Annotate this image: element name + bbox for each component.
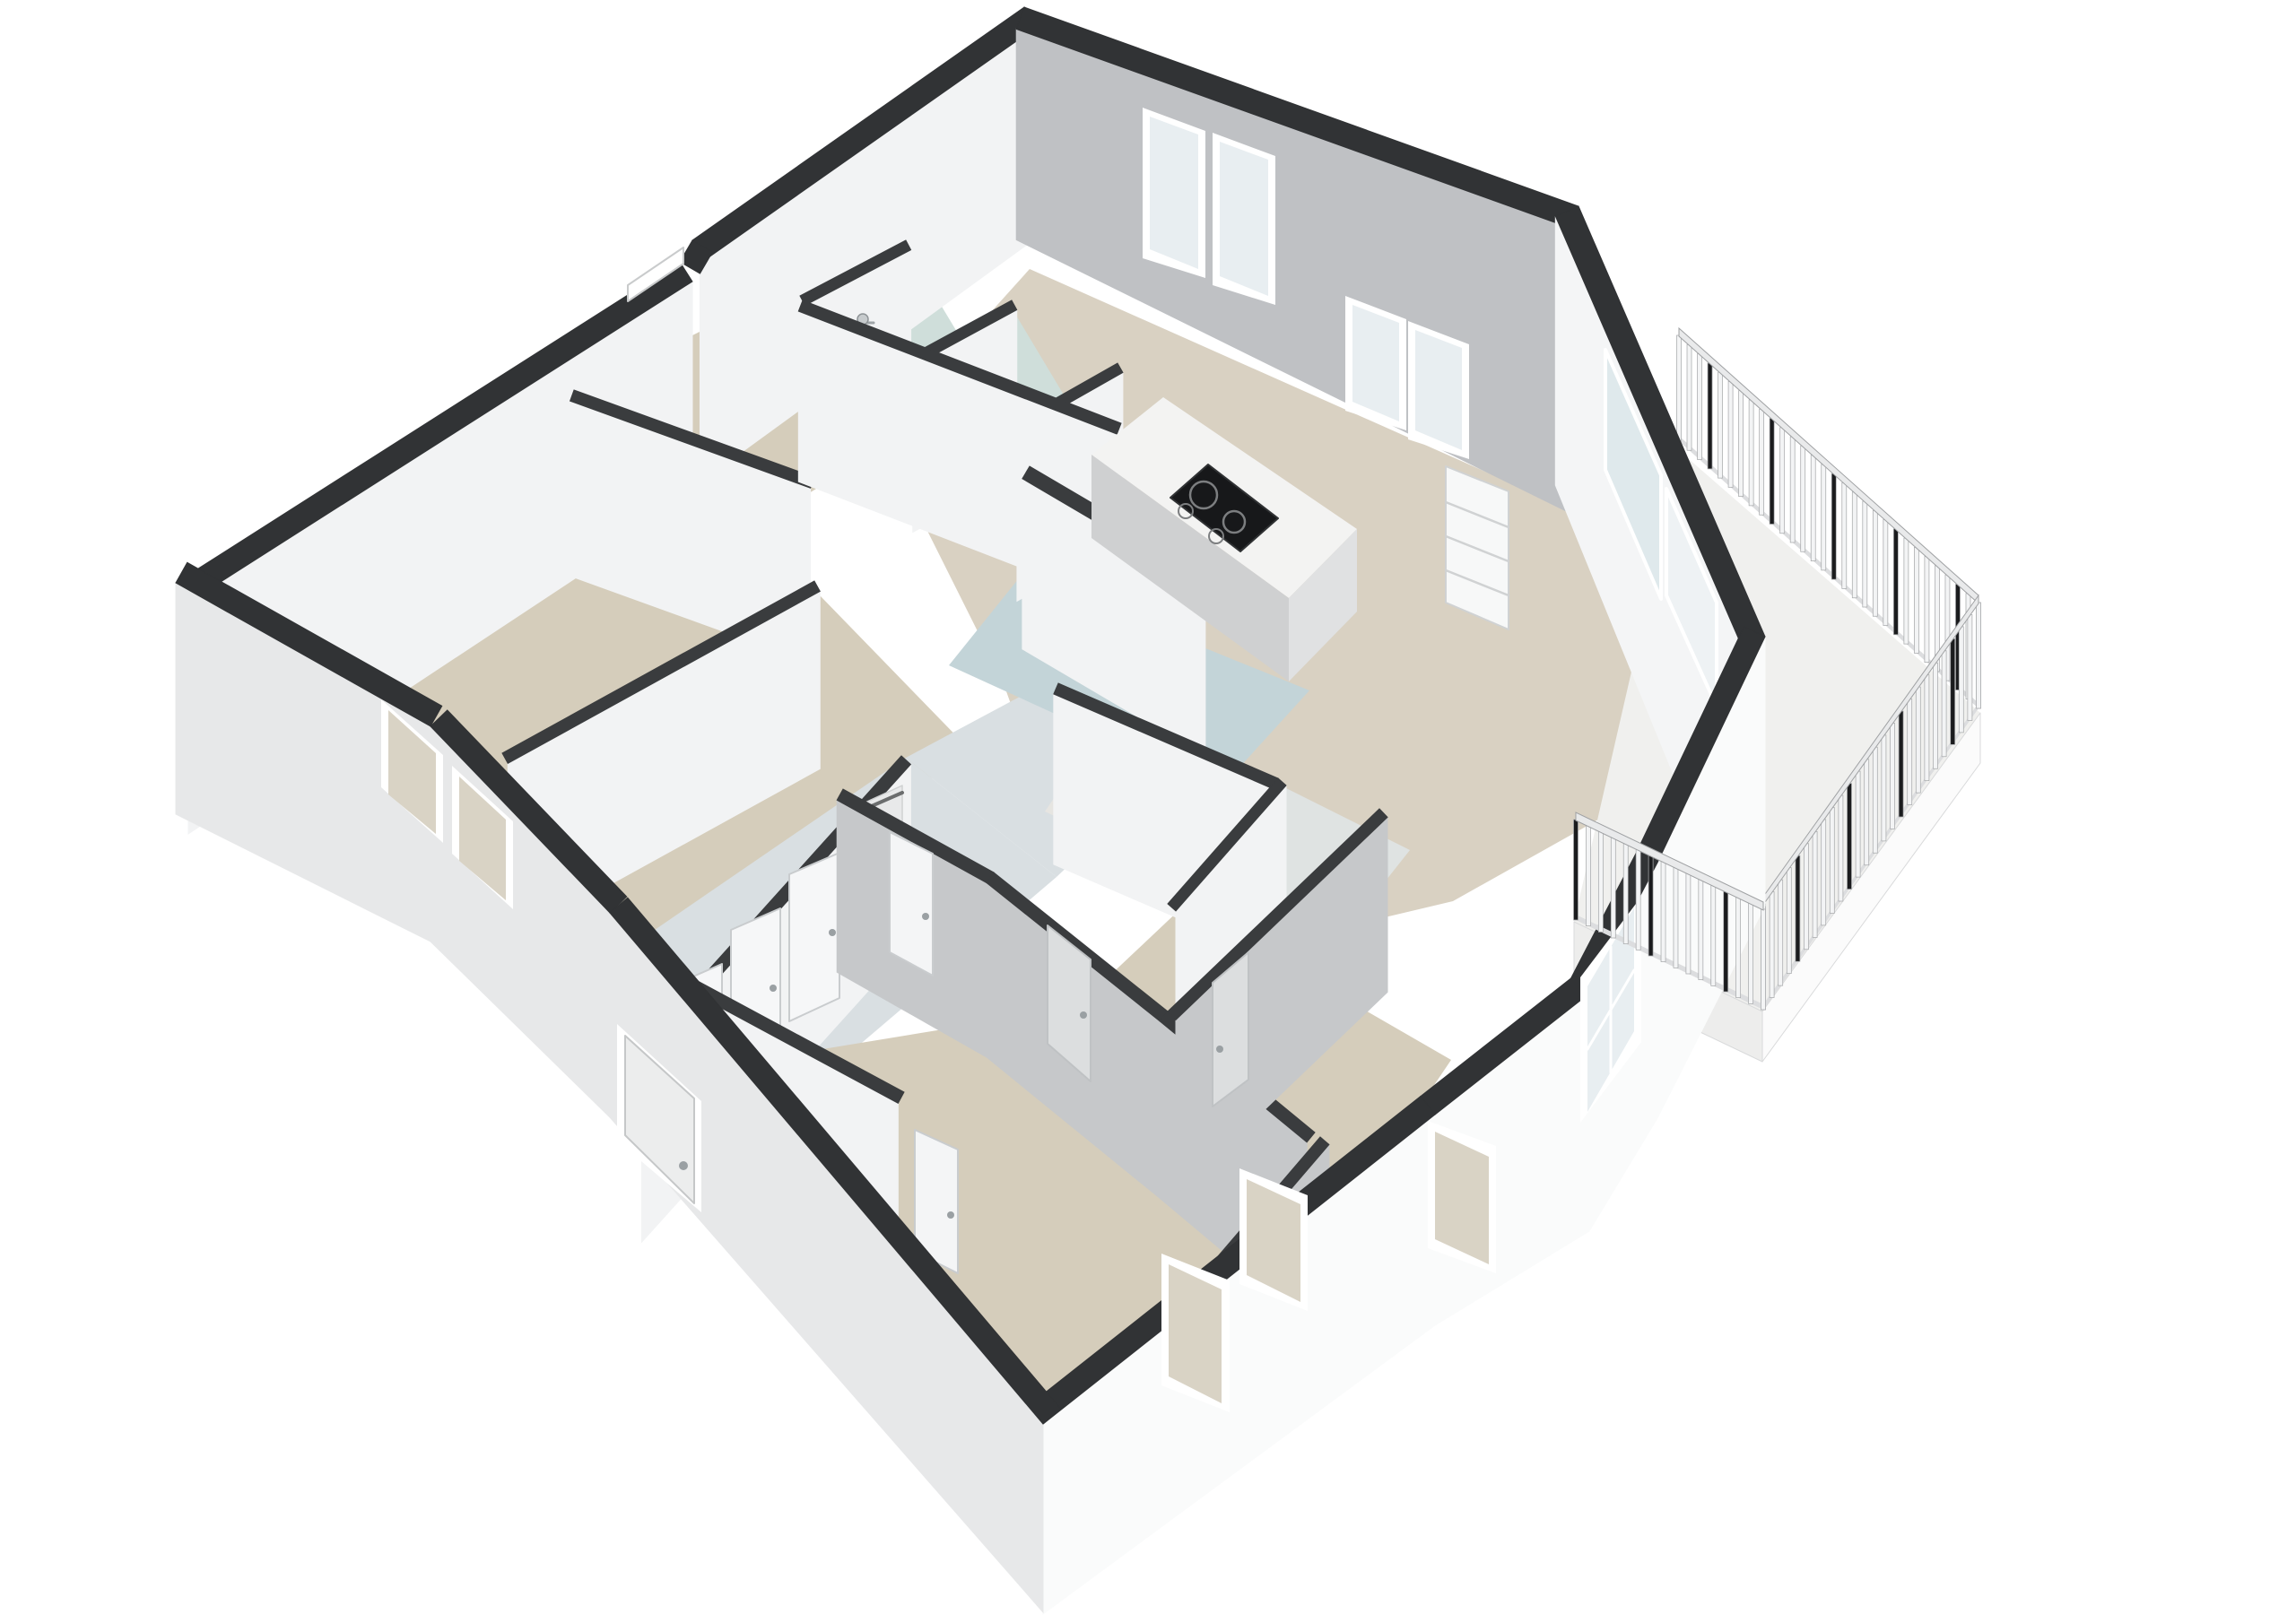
balcony-railing-east-baluster <box>1779 880 1783 985</box>
balcony-railing-north-baluster <box>1780 428 1785 534</box>
balcony-railing-north-baluster <box>1790 437 1795 542</box>
balcony-railing-south-baluster <box>1736 898 1741 998</box>
balcony-railing-north-baluster <box>1873 510 1877 616</box>
balcony-railing-east-baluster <box>1959 627 1963 733</box>
balcony-railing-east-baluster <box>1839 795 1843 901</box>
balcony-railing-south-baluster <box>1623 844 1628 944</box>
balcony-railing-north-baluster <box>1708 363 1712 469</box>
balcony-railing-north-baluster <box>1914 547 1918 653</box>
balcony-railing-north-baluster <box>1739 391 1744 497</box>
balcony-railing-east-baluster <box>1813 831 1817 937</box>
balcony-railing-north-baluster <box>1831 473 1836 579</box>
balcony-railing-east-baluster <box>1865 759 1869 865</box>
balcony-railing-north-baluster <box>1677 335 1682 441</box>
balcony-railing-east-baluster <box>1830 807 1834 913</box>
balcony-railing-south-baluster <box>1574 820 1578 920</box>
interior-door <box>890 832 933 976</box>
balcony-railing-north-baluster <box>1904 538 1909 644</box>
balcony-railing-north-baluster <box>1811 456 1815 561</box>
balcony-railing-east-baluster <box>1908 699 1912 805</box>
balcony-railing-south-baluster <box>1674 867 1678 968</box>
balcony-railing-south-baluster <box>1598 831 1603 932</box>
floorplan-page <box>0 0 2296 1623</box>
balcony-railing-east-baluster <box>1805 844 1809 950</box>
balcony-railing-north-baluster <box>1698 354 1702 460</box>
balcony-railing-east-baluster <box>1925 675 1929 781</box>
balcony-railing-north-baluster <box>1852 492 1857 598</box>
balcony-railing-north-baluster <box>1883 520 1888 626</box>
window-glass <box>1415 330 1462 450</box>
balcony-railing-south-baluster <box>1636 849 1640 950</box>
balcony-railing-east-baluster <box>1873 747 1877 853</box>
balcony-railing-north-baluster <box>1760 409 1764 515</box>
closet-door <box>789 853 839 1021</box>
balcony-railing-east-baluster <box>1934 663 1938 768</box>
door-handle <box>1080 1011 1087 1019</box>
balcony-railing-east-baluster <box>1968 614 1972 720</box>
balcony-railing-north-baluster <box>1801 446 1805 551</box>
balcony-railing-east-baluster <box>1856 771 1860 877</box>
balcony-railing-east-baluster <box>1848 784 1852 890</box>
balcony-railing-east-baluster <box>1951 638 1955 744</box>
balcony-railing-south-baluster <box>1724 891 1728 992</box>
balcony-railing-north-baluster <box>1728 381 1733 487</box>
balcony-railing-south-baluster <box>1611 838 1615 938</box>
window-glass <box>1220 142 1268 296</box>
balcony-railing-east-baluster <box>1796 855 1800 961</box>
balcony-railing-south-baluster <box>1761 909 1766 1010</box>
window-glass <box>1352 305 1399 421</box>
balcony-railing-south-baluster <box>1749 903 1753 1003</box>
balcony-railing-east-baluster <box>1891 723 1895 829</box>
balcony-railing-east-baluster <box>1977 603 1981 708</box>
balcony-railing-south-baluster <box>1661 862 1665 962</box>
balcony-railing-north-baluster <box>1749 400 1753 506</box>
balcony-railing-east-baluster <box>1882 735 1886 841</box>
balcony-railing-south-baluster <box>1711 885 1716 985</box>
closet-door-handle <box>829 929 836 936</box>
window-glass <box>1150 117 1198 269</box>
entry-door-handle <box>679 1161 688 1170</box>
balcony-railing-south-baluster <box>1586 826 1590 926</box>
balcony-railing-east-baluster <box>1899 711 1903 817</box>
balcony-railing-south-baluster <box>1648 855 1653 956</box>
door-handle <box>947 1211 954 1219</box>
closet-door-handle <box>770 985 777 992</box>
balcony-railing-north-baluster <box>1718 372 1723 478</box>
floorplan-figure <box>0 0 2296 1623</box>
balcony-railing-north-baluster <box>1842 482 1847 588</box>
balcony-railing-south-baluster <box>1699 880 1703 980</box>
balcony-railing-east-baluster <box>1787 868 1791 974</box>
balcony-railing-east-baluster <box>1916 687 1920 793</box>
balcony-railing-east-baluster <box>1770 892 1774 998</box>
balcony-railing-east-baluster <box>1942 651 1946 757</box>
balcony-railing-north-baluster <box>1770 418 1774 524</box>
door-handle <box>922 913 929 920</box>
balcony-railing-east-baluster <box>1822 820 1826 925</box>
balcony-railing-north-baluster <box>1893 529 1898 635</box>
balcony-railing-south-baluster <box>1686 873 1691 974</box>
balcony-railing-north-baluster <box>1822 464 1826 570</box>
balcony-railing-north-baluster <box>1687 344 1692 450</box>
floorplan-3d-render <box>0 0 2296 1623</box>
balcony-railing-north-baluster <box>1863 501 1867 607</box>
balcony-railing-north-baluster <box>1925 557 1929 663</box>
door-handle <box>1216 1046 1223 1053</box>
